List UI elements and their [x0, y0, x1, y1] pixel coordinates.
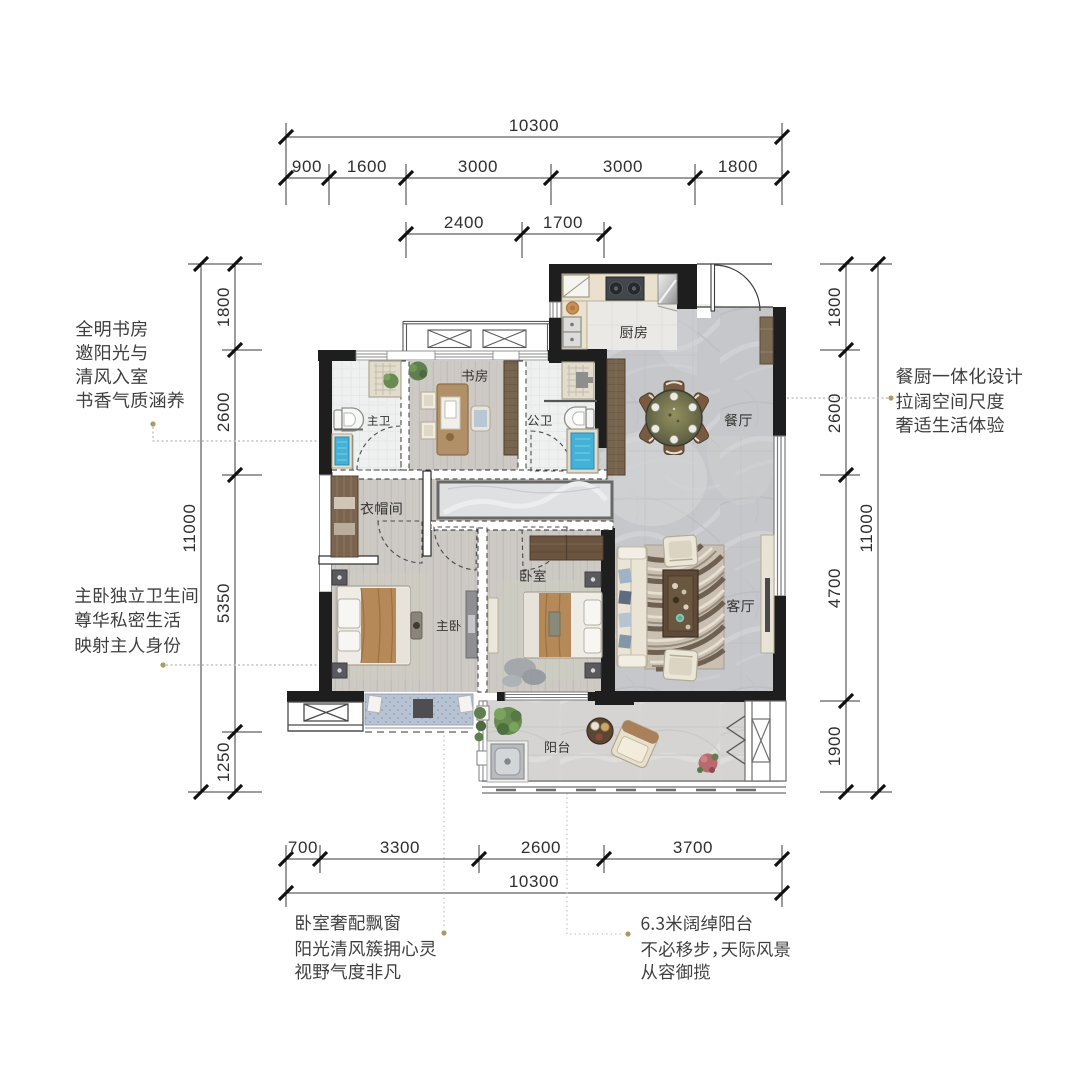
- svg-text:3000: 3000: [458, 157, 498, 176]
- svg-text:700: 700: [288, 838, 318, 857]
- svg-text:2400: 2400: [444, 213, 484, 232]
- svg-text:3300: 3300: [380, 838, 420, 857]
- svg-text:10300: 10300: [509, 872, 559, 891]
- svg-text:4700: 4700: [825, 568, 844, 608]
- svg-text:1800: 1800: [825, 287, 844, 327]
- svg-text:2600: 2600: [521, 838, 561, 857]
- svg-text:3700: 3700: [673, 838, 713, 857]
- svg-text:11000: 11000: [180, 503, 199, 552]
- svg-text:5350: 5350: [214, 583, 233, 623]
- svg-text:1700: 1700: [543, 213, 583, 232]
- svg-text:2600: 2600: [825, 393, 844, 433]
- svg-text:1800: 1800: [718, 157, 758, 176]
- svg-text:1250: 1250: [214, 742, 233, 782]
- svg-text:10300: 10300: [509, 116, 559, 135]
- svg-text:3000: 3000: [603, 157, 643, 176]
- svg-text:1600: 1600: [347, 157, 387, 176]
- svg-text:1900: 1900: [825, 726, 844, 766]
- svg-text:2600: 2600: [214, 392, 233, 432]
- svg-text:1800: 1800: [214, 287, 233, 327]
- svg-text:11000: 11000: [857, 503, 876, 552]
- svg-text:900: 900: [292, 157, 322, 176]
